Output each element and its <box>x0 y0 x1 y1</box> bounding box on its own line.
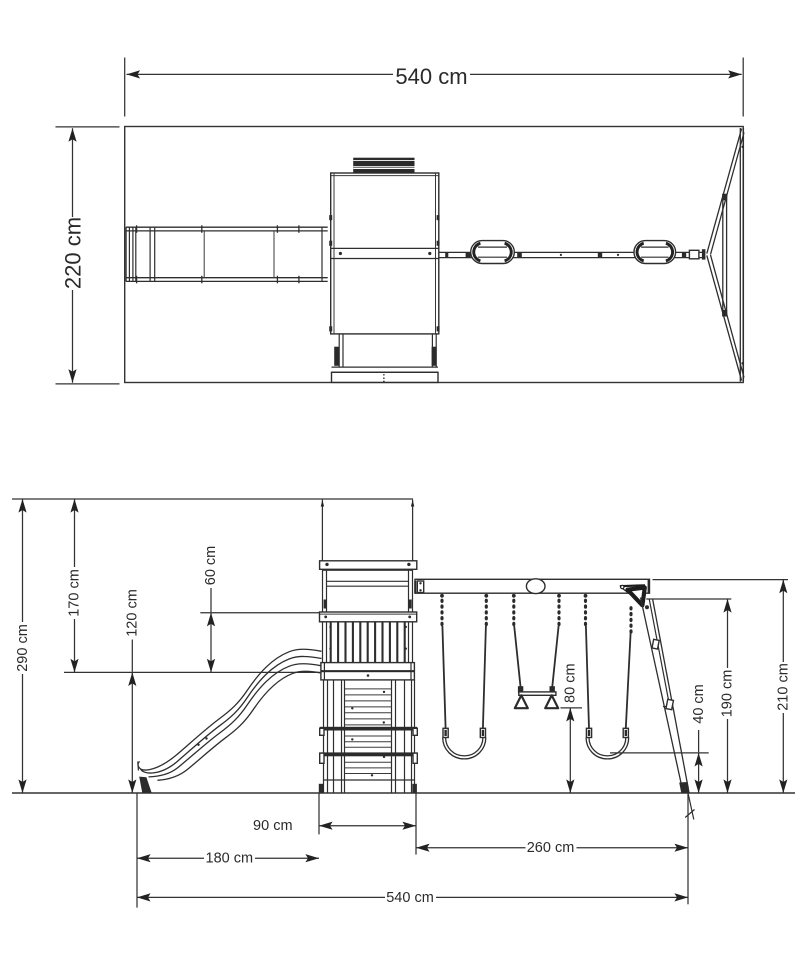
svg-text:290 cm: 290 cm <box>15 624 31 672</box>
svg-text:180 cm: 180 cm <box>206 850 254 866</box>
svg-text:260 cm: 260 cm <box>527 840 575 856</box>
svg-text:190 cm: 190 cm <box>720 670 736 718</box>
svg-text:120 cm: 120 cm <box>125 589 141 637</box>
svg-text:220 cm: 220 cm <box>60 217 85 289</box>
svg-text:540 cm: 540 cm <box>386 890 434 906</box>
svg-text:80 cm: 80 cm <box>563 663 579 703</box>
svg-text:540 cm: 540 cm <box>395 64 467 89</box>
svg-text:90 cm: 90 cm <box>253 818 293 834</box>
svg-text:40 cm: 40 cm <box>691 684 707 724</box>
svg-text:170 cm: 170 cm <box>67 569 83 617</box>
svg-text:60 cm: 60 cm <box>203 546 219 586</box>
svg-text:210 cm: 210 cm <box>775 663 791 711</box>
